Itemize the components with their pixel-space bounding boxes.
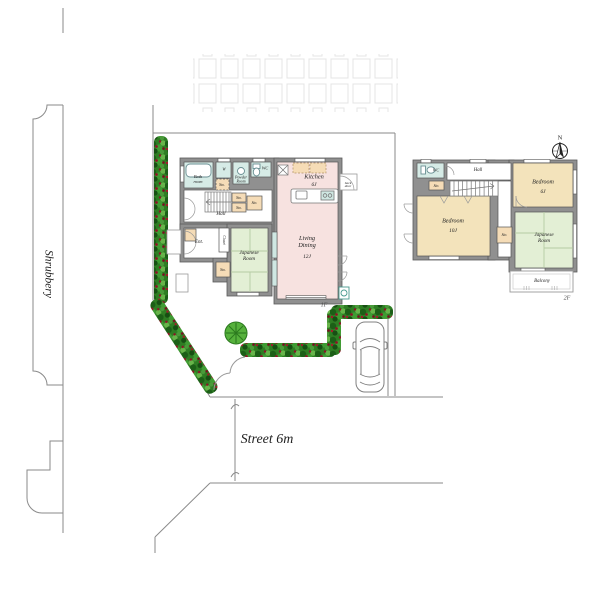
room-japanese-1f [231,228,268,292]
entry-porch [167,230,181,254]
storage-a-1f [232,193,246,202]
room-kitchen-living-1f [277,162,338,299]
utility-unit [339,287,349,299]
room-bedroom-large-2f [417,196,490,256]
site-plan-drawing [0,0,600,600]
stairs-2f [450,181,498,196]
garden-step [176,274,188,292]
toilet-tank-2f [421,166,426,174]
storage-b-1f [232,203,246,212]
stairs-1f [205,192,231,212]
street-width-marker [231,399,239,481]
closet-sliver-1f [219,228,229,252]
toilet-bowl-2f [427,167,435,173]
neighbor-outline-bottom [27,441,63,513]
balcony [510,271,573,292]
sliding-door-1f [272,232,277,258]
corridor-2f [498,181,511,257]
room-hall-2f [447,163,511,180]
storage-linen-1f [216,179,229,190]
bathtub [186,164,211,177]
storage-f-2f [497,227,512,243]
site-plan-canvas: Shrubbery Street 6m N Bath room W Powder… [0,0,600,600]
sliding-door-1f [272,260,277,286]
car [353,322,387,392]
room-bedroom-small-2f [513,163,573,207]
storage-d-1f [216,262,230,277]
room-washer-1f [216,162,231,178]
water-heater-box [278,165,288,175]
floor1-plan [167,158,357,304]
kitchen-counter [291,189,338,203]
toilet-bowl-1f [253,168,259,176]
shoe-cabinet-1f [185,229,196,241]
storage-c-1f [247,196,262,210]
floor2-plan [404,159,577,292]
north-arrow-icon [553,142,568,159]
block-wall-faint [193,54,398,112]
powder-sink [238,168,245,175]
storage-e-2f [429,181,444,190]
neighbor-outline-top [33,105,63,385]
tree [225,322,247,344]
gate [214,357,245,390]
